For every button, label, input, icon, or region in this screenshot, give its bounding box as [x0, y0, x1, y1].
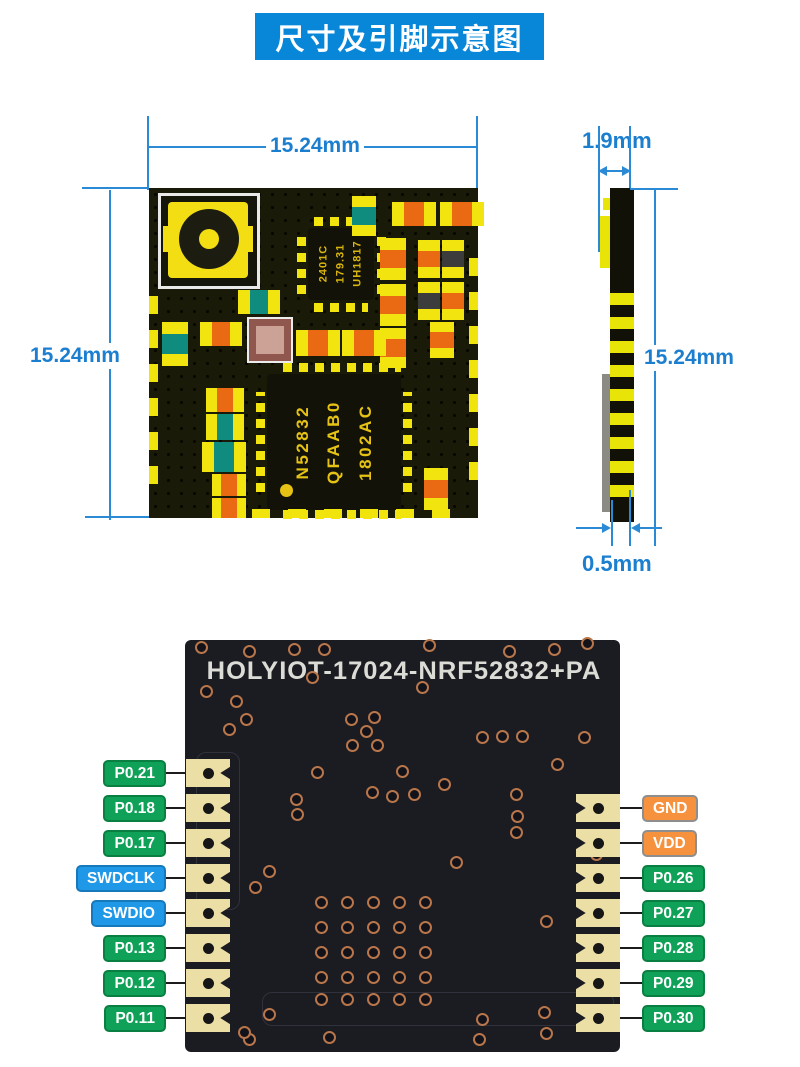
via-hole: [540, 915, 553, 928]
via-hole: [416, 681, 429, 694]
side-castellation-stripe: [610, 389, 634, 401]
side-castellation-stripe: [610, 341, 634, 353]
side-pad-bump: [600, 216, 610, 268]
via-hole: [419, 921, 432, 934]
via-hole: [346, 739, 359, 752]
smd-component: [380, 238, 406, 280]
castellation-pad: [432, 509, 450, 518]
castellation-pad: [469, 462, 478, 480]
castellation-pad: [469, 394, 478, 412]
pin-dot: [203, 978, 214, 989]
castellation-pad: [469, 258, 478, 276]
via-hole: [548, 643, 561, 656]
side-castellation-stripe: [610, 317, 634, 329]
via-hole: [341, 946, 354, 959]
rf-chip-line3: UH1817: [350, 241, 367, 287]
smd-component: [442, 282, 464, 320]
pin-dot: [203, 1013, 214, 1024]
via-hole: [366, 786, 379, 799]
dim-label-top-height: 15.24mm: [26, 343, 124, 369]
arrow-left-icon: [598, 166, 607, 176]
via-hole: [311, 766, 324, 779]
via-hole: [367, 993, 380, 1006]
via-hole: [341, 993, 354, 1006]
castellation-pad: [252, 509, 270, 518]
via-hole: [393, 971, 406, 984]
via-hole: [367, 946, 380, 959]
via-hole: [240, 713, 253, 726]
via-hole: [306, 671, 319, 684]
pin-label-p0-17: P0.17: [103, 830, 166, 857]
via-hole: [516, 730, 529, 743]
smd-component: [430, 322, 454, 358]
side-shield-edge: [602, 374, 610, 512]
via-hole: [263, 865, 276, 878]
pin-label-swdio: SWDIO: [91, 900, 166, 927]
ext-line: [82, 187, 148, 189]
via-hole: [511, 810, 524, 823]
via-hole: [288, 643, 301, 656]
page: 尺寸及引脚示意图 15.24mm 15.24mm 2401C 179.31 UH…: [0, 0, 800, 1067]
via-hole: [503, 645, 516, 658]
via-hole: [315, 971, 328, 984]
via-hole: [396, 765, 409, 778]
pin-dot: [203, 803, 214, 814]
via-hole: [419, 993, 432, 1006]
via-hole: [230, 695, 243, 708]
smd-component: [442, 240, 464, 278]
via-hole: [540, 1027, 553, 1040]
smd-component: [206, 414, 244, 440]
smd-component: [418, 240, 440, 278]
pin-label-p0-13: P0.13: [103, 935, 166, 962]
castellation-pad: [469, 360, 478, 378]
pin-label-p0-11: P0.11: [104, 1005, 166, 1032]
castellation-pad: [149, 466, 158, 484]
via-hole: [510, 826, 523, 839]
via-hole: [290, 793, 303, 806]
smd-component: [206, 388, 244, 412]
smd-component: [238, 290, 280, 314]
via-hole: [551, 758, 564, 771]
via-hole: [360, 725, 373, 738]
chip-pads: [314, 303, 368, 312]
via-hole: [341, 921, 354, 934]
dim-label-pad-pitch: 0.5mm: [578, 551, 656, 577]
via-hole: [438, 778, 451, 791]
via-hole: [200, 685, 213, 698]
pin-dot: [593, 803, 604, 814]
main-chip-line3: 1802AC: [350, 400, 381, 484]
via-hole: [393, 896, 406, 909]
castellation-pad: [396, 509, 414, 518]
via-hole: [408, 788, 421, 801]
side-castellation-stripe: [610, 413, 634, 425]
castellation-pad: [149, 296, 158, 314]
pin-label-p0-26: P0.26: [642, 865, 705, 892]
via-hole: [393, 921, 406, 934]
via-hole: [315, 946, 328, 959]
castellation-pad: [288, 509, 306, 518]
pin-dot: [203, 838, 214, 849]
castellation-pad: [149, 330, 158, 348]
title-bar: 尺寸及引脚示意图: [255, 13, 544, 60]
castellation-pad: [360, 509, 378, 518]
pcb-side-view: [610, 188, 634, 522]
smd-component: [162, 322, 188, 366]
via-hole: [315, 921, 328, 934]
castellation-pad: [469, 292, 478, 310]
silkscreen-text: HOLYIOT-17024-NRF52832+PA: [192, 657, 616, 686]
main-chip-nrf52832: N52832 QFAAB0 1802AC: [267, 374, 401, 510]
via-hole: [223, 723, 236, 736]
smd-component: [380, 284, 406, 326]
ext-line: [611, 500, 613, 546]
via-hole: [393, 946, 406, 959]
via-hole: [263, 1008, 276, 1021]
side-castellation-stripe: [610, 365, 634, 377]
dim-label-side-height: 15.24mm: [640, 345, 738, 371]
rf-chip-line2: 179.31: [332, 241, 349, 287]
pin-dot: [593, 978, 604, 989]
smd-component: [296, 330, 340, 356]
main-chip-marking: N52832 QFAAB0 1802AC: [287, 400, 381, 484]
pin-dot: [203, 768, 214, 779]
pin-dot: [593, 873, 604, 884]
rf-chip: 2401C 179.31 UH1817: [308, 228, 374, 300]
via-hole: [423, 639, 436, 652]
pin-dot: [203, 908, 214, 919]
pin-label-gnd: GND: [642, 795, 698, 822]
pin-dot: [203, 943, 214, 954]
via-hole: [195, 641, 208, 654]
via-hole: [291, 808, 304, 821]
main-chip-line1: N52832: [287, 400, 318, 484]
pin-label-p0-29: P0.29: [642, 970, 705, 997]
pin-label-p0-12: P0.12: [103, 970, 166, 997]
pin-label-p0-27: P0.27: [642, 900, 705, 927]
via-hole: [386, 790, 399, 803]
via-hole: [473, 1033, 486, 1046]
pin-dot: [593, 908, 604, 919]
chip-pads: [297, 236, 306, 294]
via-hole: [323, 1031, 336, 1044]
via-hole: [510, 788, 523, 801]
pin-dot: [593, 838, 604, 849]
side-pad-bump: [603, 198, 610, 210]
pin-label-swdclk: SWDCLK: [76, 865, 166, 892]
via-hole: [393, 993, 406, 1006]
rf-chip-marking: 2401C 179.31 UH1817: [315, 241, 366, 287]
via-hole: [315, 993, 328, 1006]
via-hole: [243, 645, 256, 658]
via-hole: [318, 643, 331, 656]
pin-label-vdd: VDD: [642, 830, 697, 857]
pin-dot: [593, 1013, 604, 1024]
smd-component: [202, 442, 246, 472]
page-title: 尺寸及引脚示意图: [275, 16, 523, 58]
side-castellation-stripe: [610, 293, 634, 305]
via-hole: [315, 896, 328, 909]
ext-line: [147, 116, 149, 190]
via-hole: [367, 921, 380, 934]
via-hole: [341, 971, 354, 984]
dim-label-thickness: 1.9mm: [578, 128, 656, 154]
via-hole: [476, 1013, 489, 1026]
pin-label-p0-18: P0.18: [103, 795, 166, 822]
pin1-dot: [280, 484, 293, 497]
smd-component: [424, 468, 448, 510]
connector-center-pin: [199, 229, 219, 249]
arrow-right-icon: [622, 166, 631, 176]
via-hole: [345, 713, 358, 726]
castellation-pad: [469, 428, 478, 446]
via-hole: [419, 896, 432, 909]
smd-component: [352, 196, 376, 236]
chip-pads: [403, 392, 412, 492]
antenna-tab: [241, 226, 253, 252]
via-hole: [419, 971, 432, 984]
ipex-antenna-connector: [158, 193, 260, 289]
smd-component: [342, 330, 386, 356]
castellation-pad: [149, 432, 158, 450]
ext-line: [629, 126, 631, 196]
via-hole: [367, 971, 380, 984]
via-hole: [419, 946, 432, 959]
side-castellation-stripe: [610, 437, 634, 449]
smd-component: [392, 202, 436, 226]
smd-component: [418, 282, 440, 320]
via-hole: [249, 881, 262, 894]
arrow-right-icon: [602, 523, 611, 533]
castellation-pad: [149, 364, 158, 382]
castellation-pad: [324, 509, 342, 518]
crystal-oscillator: [247, 317, 293, 363]
pin-label-p0-28: P0.28: [642, 935, 705, 962]
pin-label-p0-21: P0.21: [103, 760, 166, 787]
pin-label-p0-30: P0.30: [642, 1005, 705, 1032]
via-hole: [578, 731, 591, 744]
smd-component: [440, 202, 484, 226]
via-hole: [450, 856, 463, 869]
main-chip-line2: QFAAB0: [318, 400, 349, 484]
via-hole: [238, 1026, 251, 1039]
castellation-pad: [469, 326, 478, 344]
via-hole: [476, 731, 489, 744]
pcb-bottom-view: [185, 640, 620, 1052]
castellation-pad: [149, 398, 158, 416]
arrow-left-icon: [631, 523, 640, 533]
smd-component: [212, 474, 246, 496]
via-hole: [368, 711, 381, 724]
antenna-tab: [163, 226, 175, 252]
smd-component: [200, 322, 242, 346]
via-hole: [367, 896, 380, 909]
via-hole: [371, 739, 384, 752]
chip-pads: [256, 392, 265, 492]
side-castellation-stripe: [610, 461, 634, 473]
via-hole: [581, 637, 594, 650]
rf-chip-line1: 2401C: [315, 241, 332, 287]
pin-dot: [203, 873, 214, 884]
pin-dot: [593, 943, 604, 954]
ext-line: [629, 490, 631, 546]
smd-component: [212, 498, 246, 518]
via-hole: [496, 730, 509, 743]
dim-label-top-width: 15.24mm: [266, 133, 364, 159]
via-hole: [341, 896, 354, 909]
via-hole: [538, 1006, 551, 1019]
